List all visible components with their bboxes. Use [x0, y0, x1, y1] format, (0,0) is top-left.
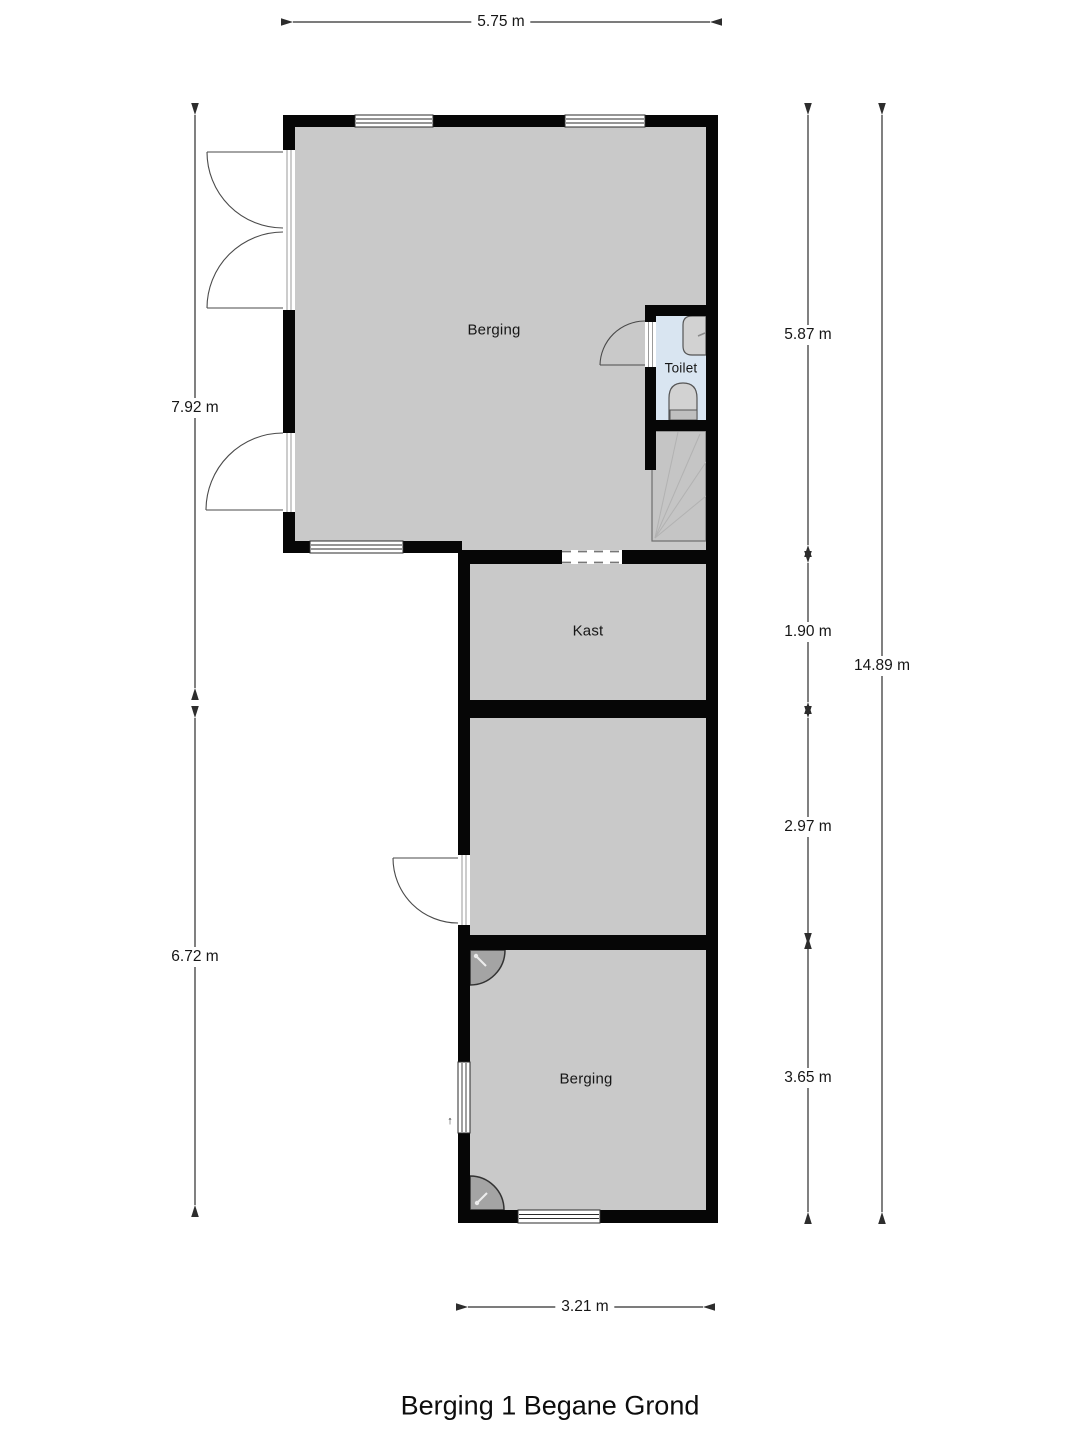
window-top-left	[355, 115, 433, 127]
window-berging-bottom	[518, 1210, 600, 1223]
dim-label-left-upper: 7.92 m	[165, 398, 224, 418]
room-label-toilet: Toilet	[665, 361, 698, 376]
double-door-leaf-bottom	[207, 232, 283, 308]
dim-label-left-lower: 6.72 m	[165, 947, 224, 967]
toilet-door-opening	[645, 322, 656, 367]
staircase	[652, 431, 706, 541]
window-main-bottom	[310, 541, 403, 553]
dim-label-right-seg2: 1.90 m	[778, 622, 837, 642]
single-door-swing	[206, 433, 283, 510]
door-swing-marker: ↑	[447, 1115, 453, 1127]
dim-label-right-total: 14.89 m	[848, 656, 916, 676]
dim-label-right-seg4: 3.65 m	[778, 1068, 837, 1088]
room-label-kast: Kast	[573, 623, 604, 640]
dim-label-right-seg1: 5.87 m	[778, 325, 837, 345]
sink-fixture	[683, 316, 706, 355]
berging-main-floor	[295, 127, 706, 550]
room-label-berging-main: Berging	[467, 322, 520, 339]
dim-label-bottom-width: 3.21 m	[555, 1297, 614, 1317]
page-title: Berging 1 Begane Grond	[401, 1391, 700, 1422]
floor-plan-page: { "title": "Berging 1 Begane Grond", "ro…	[0, 0, 1080, 1440]
dim-label-right-seg3: 2.97 m	[778, 817, 837, 837]
dim-label-top-width: 5.75 m	[471, 12, 530, 32]
middle-room-floor	[470, 718, 706, 935]
room-floors	[295, 127, 706, 1210]
middle-room-door-swing	[393, 858, 458, 923]
double-door-leaf-top	[207, 152, 283, 228]
window-top-right	[565, 115, 645, 127]
kast-passage-opening	[562, 550, 622, 564]
room-label-berging-bottom: Berging	[559, 1071, 612, 1088]
single-door-opening	[283, 433, 295, 512]
window-berging-left	[458, 1062, 470, 1133]
double-door-opening	[283, 150, 295, 310]
middle-room-door-opening	[458, 855, 470, 925]
toilet-fixture	[669, 383, 697, 420]
floor-plan-drawing	[0, 0, 1080, 1440]
